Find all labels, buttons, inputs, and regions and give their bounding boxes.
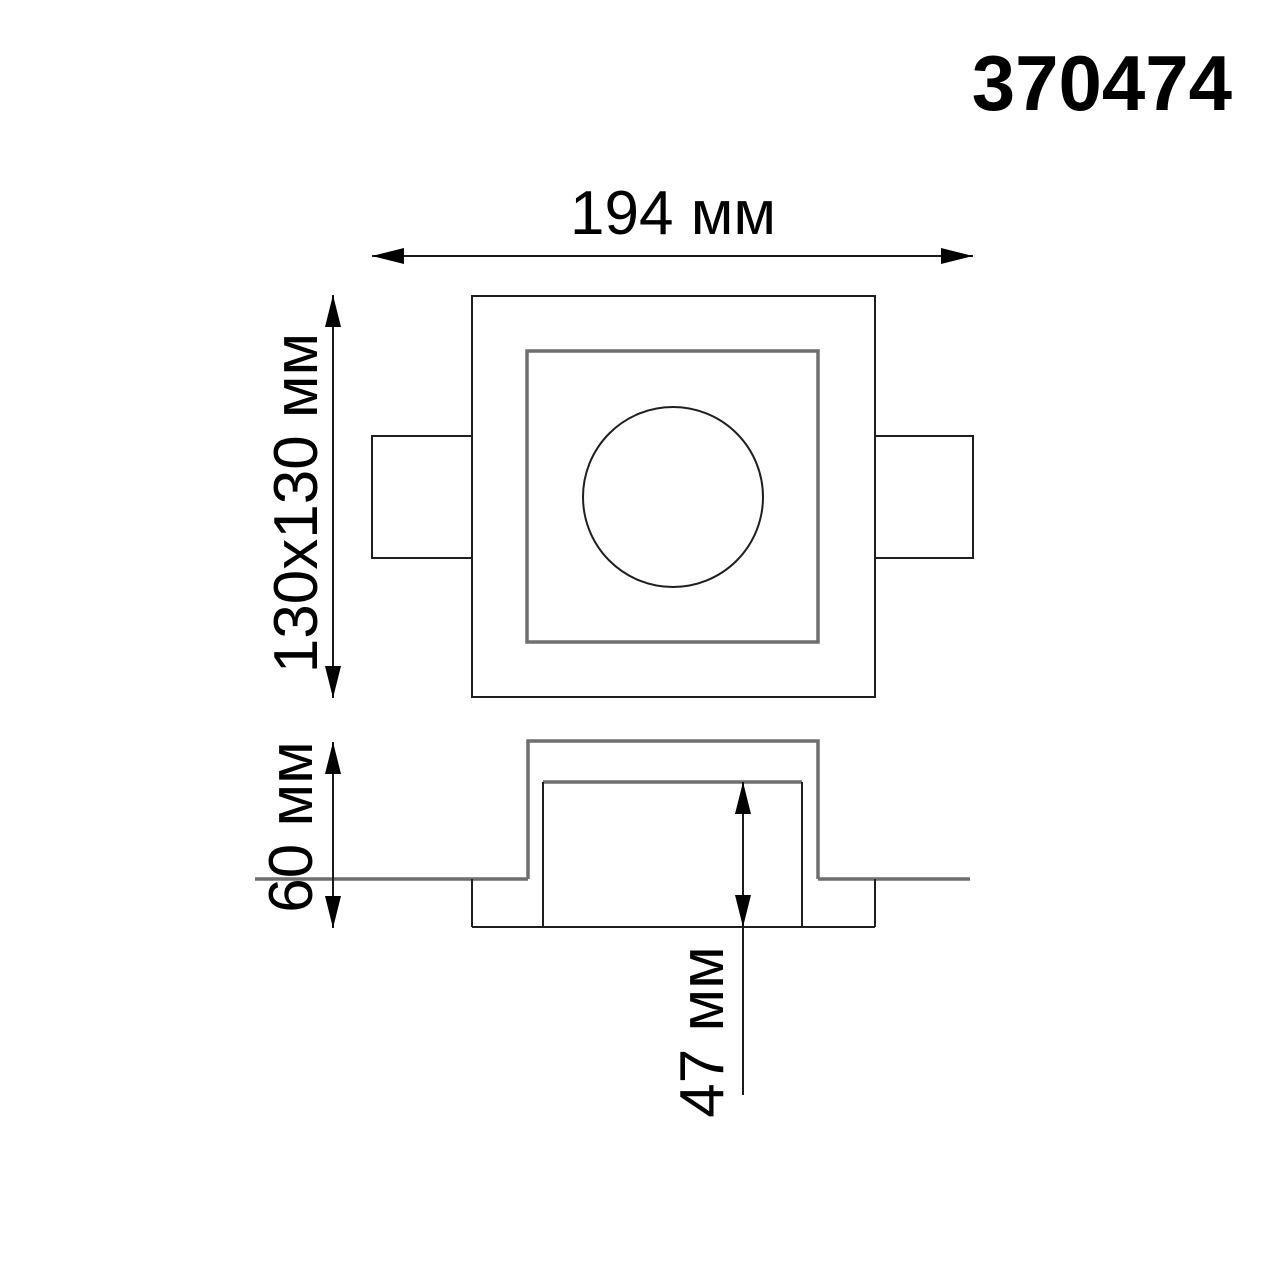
top-view (372, 296, 973, 697)
width-arrow-left-icon (372, 248, 404, 264)
depth-dimension-label: 47 мм (668, 946, 737, 1117)
depth-arrow-top-icon (735, 782, 751, 814)
dimension-overall-height: 60 мм (257, 741, 341, 928)
top-view-right-tab (875, 436, 973, 558)
top-view-outer-square (472, 296, 875, 697)
height-arrow-top-icon (325, 742, 341, 774)
dimension-recess-depth: 47 мм (668, 782, 751, 1118)
height-arrow-bottom-icon (325, 896, 341, 928)
top-view-left-tab (372, 436, 472, 558)
cutout-arrow-top-icon (325, 295, 341, 327)
dimension-overall-width: 194 мм (372, 179, 973, 264)
section-housing-profile (528, 741, 818, 879)
dimension-cutout: 130x130 мм (262, 295, 341, 698)
top-view-inner-frame (527, 351, 818, 642)
depth-arrow-bottom-icon (735, 895, 751, 927)
product-code: 370474 (972, 39, 1232, 127)
section-view (255, 741, 970, 927)
top-view-lamp-circle (583, 407, 763, 587)
fixture-dimension-diagram: 194 мм 130x130 мм (0, 0, 1280, 1280)
width-dimension-label: 194 мм (570, 179, 776, 248)
height-dimension-label: 60 мм (257, 741, 326, 912)
cutout-dimension-label: 130x130 мм (262, 333, 331, 673)
width-arrow-right-icon (941, 248, 973, 264)
technical-drawing-page: 194 мм 130x130 мм (0, 0, 1280, 1280)
